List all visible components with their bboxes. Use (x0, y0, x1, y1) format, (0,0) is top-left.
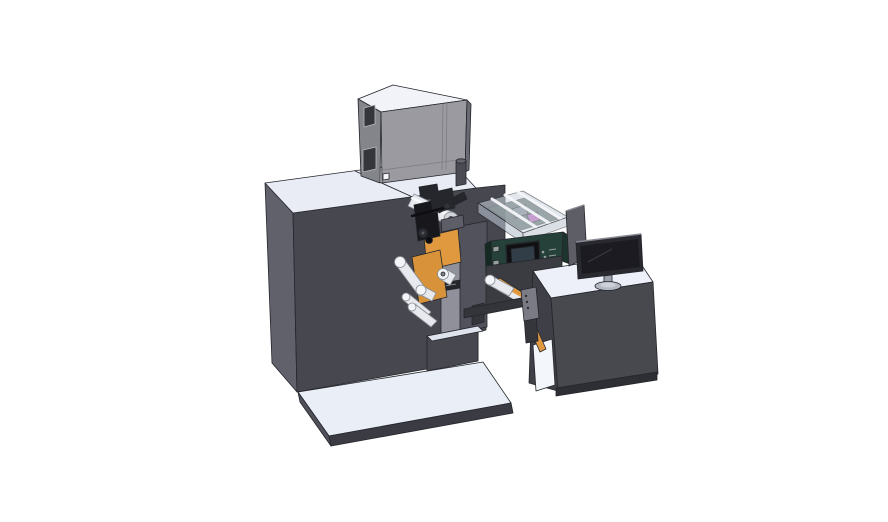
cabinet-window-lower (363, 147, 376, 172)
pendant-button-2 (526, 301, 528, 303)
guide-roller-mid-endcap (416, 285, 426, 295)
cabinet-front-face (381, 100, 467, 183)
output-roller-endcap (485, 275, 495, 285)
printhead-roller-dark (426, 237, 433, 244)
guide-bar-1-endcap (402, 293, 410, 301)
cad-render-stage (0, 0, 888, 522)
hmi-button-1 (542, 251, 545, 254)
pendant-button-3 (527, 307, 529, 309)
guide-roller-long-endcap (395, 257, 406, 268)
monitor-stand-base-top (601, 283, 616, 288)
guide-bar-2-endcap (408, 303, 416, 311)
nip-roller-hub (441, 272, 445, 276)
pendant-control (521, 287, 539, 321)
cad-scene (0, 0, 888, 522)
machine-body-left-face (265, 183, 297, 392)
control-box-pad-1 (493, 246, 499, 252)
printhead-knob-small (444, 203, 450, 209)
cabinet-window-upper (364, 105, 375, 127)
knob-cylinder-body (456, 160, 466, 186)
knob-cylinder-top (456, 159, 466, 163)
pendant-button-1 (525, 295, 527, 297)
cabinet-latch (383, 173, 389, 180)
printhead-wheel-hub (421, 231, 425, 235)
